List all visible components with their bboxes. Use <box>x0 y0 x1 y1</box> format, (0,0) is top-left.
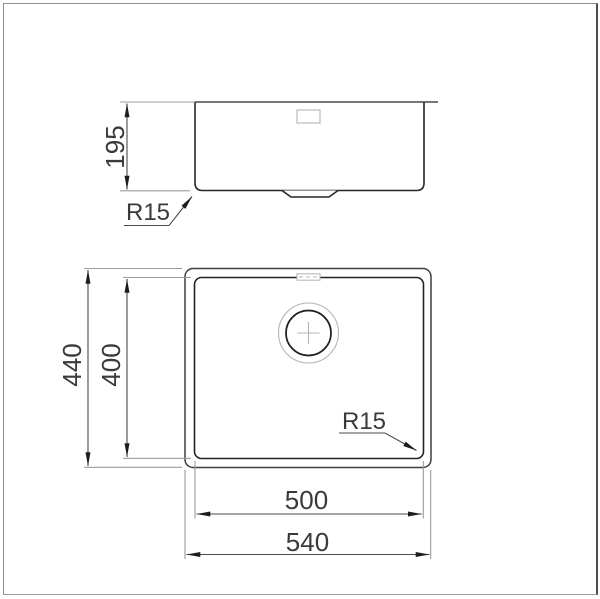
overall-width-label: 540 <box>286 529 329 555</box>
bowl-depth-label: 400 <box>98 343 124 386</box>
overflow-slot-side <box>297 110 320 123</box>
radius-label-plan: R15 <box>342 410 386 434</box>
height-dimension-label: 195 <box>102 125 128 168</box>
radius-label-side: R15 <box>126 201 170 225</box>
bowl-outline <box>195 278 424 459</box>
drawing-sheet: 195 R15 440 400 R15 500 540 <box>0 0 600 599</box>
drain-side <box>282 191 338 198</box>
overall-depth-label: 440 <box>59 343 85 386</box>
bowl-width-label: 500 <box>285 487 328 513</box>
